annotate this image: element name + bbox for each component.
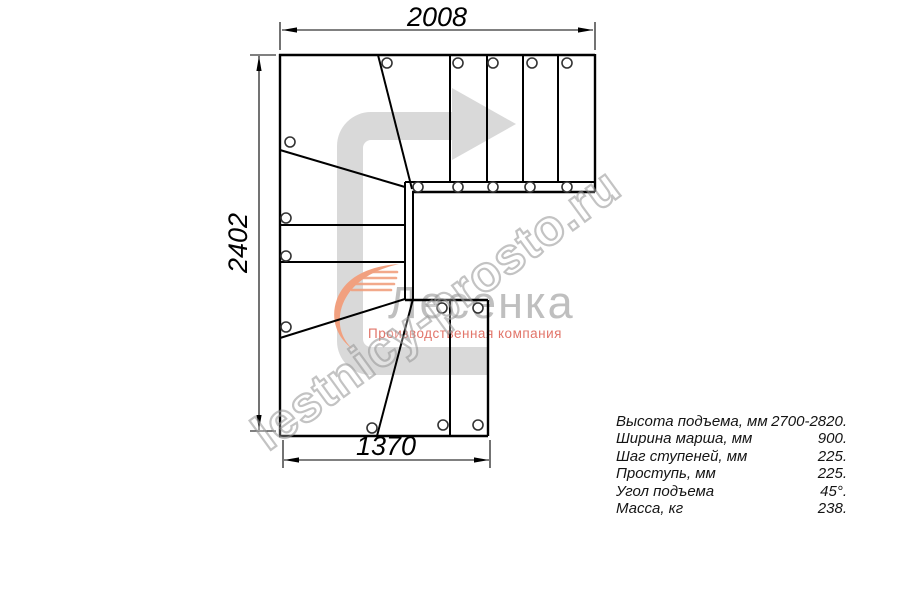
staircase-drawing-page: Лесенка Производственная компания xyxy=(0,0,900,600)
spec-label: Ширина марша, мм xyxy=(616,430,752,447)
spec-value: 45°. xyxy=(820,483,847,500)
dimension-left-value: 2402 xyxy=(223,213,253,274)
spec-value: 225. xyxy=(818,465,847,482)
spec-row: Шаг ступеней, мм 225. xyxy=(616,448,847,465)
dimension-arrow xyxy=(578,27,593,32)
dimension-top-value: 2008 xyxy=(406,2,467,32)
spec-row: Высота подъема, мм 2700-2820. xyxy=(616,413,847,430)
bolt-hole xyxy=(525,182,535,192)
bolt-hole xyxy=(562,58,572,68)
bolt-hole xyxy=(453,182,463,192)
bolt-hole xyxy=(281,322,291,332)
spec-value: 900. xyxy=(818,430,847,447)
dimension-arrow xyxy=(474,457,489,462)
bolt-hole xyxy=(473,420,483,430)
spec-row: Проступь, мм 225. xyxy=(616,465,847,482)
dimension-arrow xyxy=(282,27,297,32)
spec-label: Проступь, мм xyxy=(616,465,716,482)
dimension-left: 2402 xyxy=(223,55,276,431)
bolt-hole xyxy=(527,58,537,68)
bolt-hole xyxy=(453,58,463,68)
bolt-hole xyxy=(488,182,498,192)
spec-value: 238. xyxy=(818,500,847,517)
spec-row: Ширина марша, мм 900. xyxy=(616,430,847,447)
spec-row: Угол подъема 45°. xyxy=(616,483,847,500)
bolt-hole xyxy=(413,182,423,192)
spec-label: Угол подъема xyxy=(616,483,714,500)
dimension-bottom-value: 1370 xyxy=(356,431,416,461)
bolt-hole xyxy=(281,213,291,223)
bolt-hole xyxy=(488,58,498,68)
spec-label: Шаг ступеней, мм xyxy=(616,448,747,465)
bolt-hole xyxy=(281,251,291,261)
spec-table: Высота подъема, мм 2700-2820. Ширина мар… xyxy=(616,413,847,517)
dimension-top: 2008 xyxy=(280,2,595,50)
spec-value: 2700-2820. xyxy=(771,413,847,430)
spec-label: Масса, кг xyxy=(616,500,683,517)
spec-row: Масса, кг 238. xyxy=(616,500,847,517)
bolt-hole xyxy=(438,420,448,430)
bolt-hole xyxy=(285,137,295,147)
spec-value: 225. xyxy=(818,448,847,465)
spec-label: Высота подъема, мм xyxy=(616,413,768,430)
dimension-arrow xyxy=(284,457,299,462)
bolt-hole xyxy=(382,58,392,68)
dimension-arrow xyxy=(256,56,261,71)
